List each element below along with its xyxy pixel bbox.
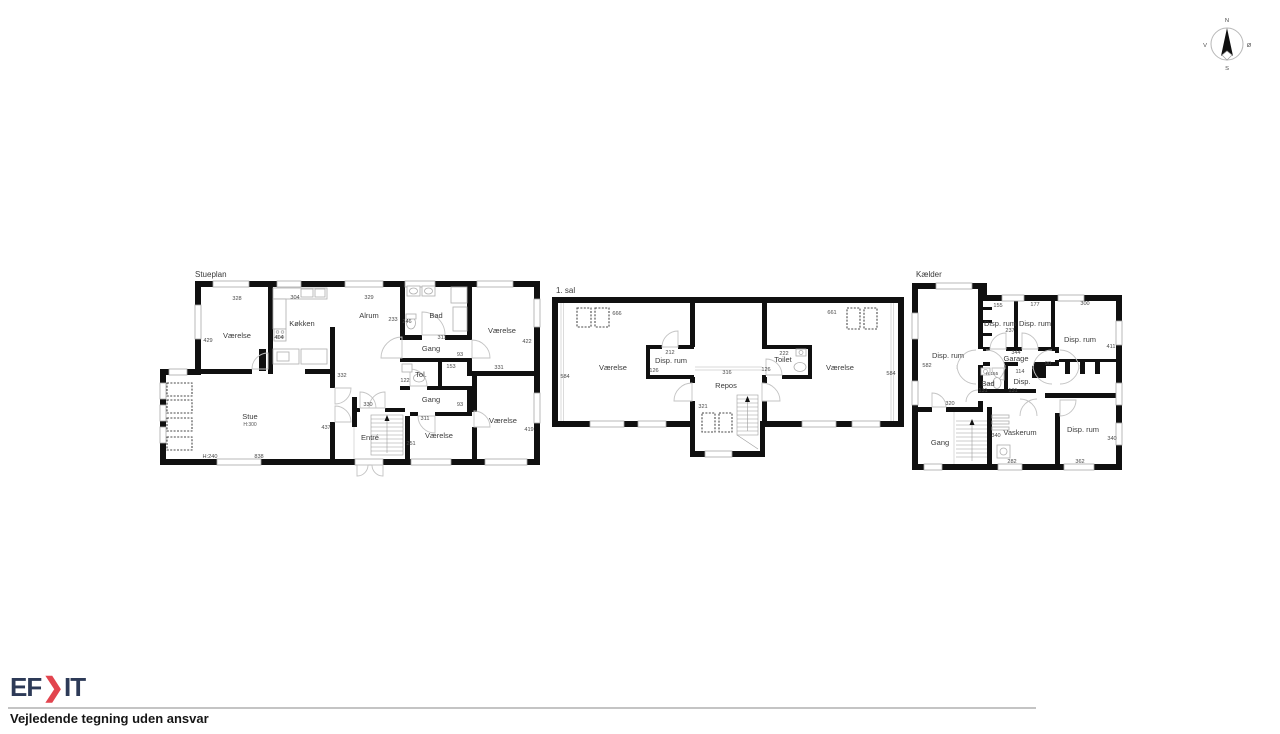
dim-label: 316 — [722, 370, 731, 376]
room-label: Alrum — [359, 311, 379, 320]
dim-label: 222 — [779, 351, 788, 357]
basement-stairs — [954, 412, 987, 464]
compass-rose: N S V Ø — [1197, 8, 1257, 76]
room-label: Værelse — [488, 326, 516, 335]
dim-label: H:155 — [986, 371, 999, 376]
dim-label: 233 — [388, 317, 397, 323]
dim-label: 131 — [1008, 388, 1017, 394]
room-label: Gang — [422, 344, 440, 353]
stueplan-labels: Værelse 328 429 Køkken 304 404 Alrum 329… — [203, 295, 534, 460]
room-label: Gang — [422, 395, 440, 404]
dim-label: 155 — [993, 303, 1002, 309]
dim-label: 304 — [290, 295, 299, 301]
room-label: Stue — [242, 412, 257, 421]
dim-label: 838 — [254, 454, 263, 460]
dim-label: 344 — [1011, 350, 1020, 356]
dim-label: 340 — [991, 433, 1000, 439]
dim-label: 300 — [1080, 301, 1089, 307]
room-label: Værelse — [425, 431, 453, 440]
basement-labels: Disp. rum 582 Disp. rum 155 237 Disp. ru… — [922, 301, 1116, 465]
dim-label: 321 — [698, 404, 707, 410]
stueplan-title: Stueplan — [195, 270, 227, 279]
dim-label: 437 — [321, 425, 330, 431]
room-label: Bad — [981, 379, 994, 388]
stueplan-drawing: Stueplan — [155, 265, 550, 477]
dim-label: 332 — [337, 373, 346, 379]
basement-title: Kælder — [916, 270, 942, 279]
dim-label: 126 — [649, 368, 658, 374]
firstfloor-stairs — [737, 395, 758, 449]
dim-label: 422 — [522, 339, 531, 345]
room-label: Værelse — [223, 331, 251, 340]
dim-label: 93 — [457, 352, 463, 358]
dim-label: 404 — [274, 335, 283, 341]
dim-label: 212 — [665, 350, 674, 356]
dim-label: 114 — [1016, 369, 1025, 375]
compass-label-east: Ø — [1247, 43, 1252, 49]
dim-label: 411 — [1107, 344, 1116, 350]
dim-label: 251 — [406, 441, 415, 447]
dim-label: 429 — [203, 338, 212, 344]
dim-label: 329 — [364, 295, 373, 301]
dim-label: 340 — [1107, 436, 1116, 442]
dim-label: 582 — [922, 363, 931, 369]
dim-label: 126 — [761, 367, 770, 373]
firstfloor-title: 1. sal — [556, 286, 575, 295]
dim-label: 131 — [978, 388, 987, 394]
firstfloor-walls — [552, 297, 904, 457]
dim-label: 311 — [438, 335, 447, 341]
footer-divider — [8, 707, 1036, 709]
stueplan-walls — [160, 281, 540, 465]
dim-label: 331 — [494, 365, 503, 371]
room-label: Tol. — [415, 370, 427, 379]
room-label: Disp. rum — [1019, 319, 1051, 328]
room-label: Værelse — [826, 363, 854, 372]
room-label: Bad — [429, 311, 442, 320]
room-sublabel: H:300 — [243, 422, 257, 428]
dim-label: 666 — [612, 311, 621, 317]
dim-label: 320 — [945, 401, 954, 407]
dim-label: 584 — [560, 374, 569, 380]
company-logo: EF❯IT — [10, 674, 85, 700]
logo-text-prefix: EF — [10, 672, 41, 702]
dim-label: 122 — [400, 378, 409, 384]
room-label: Disp. rum — [1064, 335, 1096, 344]
dim-label: 419 — [524, 427, 533, 433]
room-label: Værelse — [489, 416, 517, 425]
room-label: Vaskerum — [1003, 428, 1036, 437]
room-label: Disp. rum — [1067, 425, 1099, 434]
dim-label: H:240 — [203, 454, 218, 460]
room-label: Disp. rum — [984, 319, 1016, 328]
basement-drawing: Kælder — [910, 265, 1132, 477]
logo-chevron-icon: ❯ — [41, 672, 64, 702]
firstfloor-labels: Værelse 666 584 Disp. rum 212 126 Repos … — [560, 310, 895, 410]
compass-graphic — [1211, 28, 1243, 60]
dim-label: 362 — [1075, 459, 1084, 465]
dim-label: 90 — [1045, 361, 1051, 367]
room-label: Køkken — [289, 319, 314, 328]
compass-label-north: N — [1225, 18, 1229, 24]
dim-label: 282 — [1007, 459, 1016, 465]
room-label: Repos — [715, 381, 737, 390]
dim-label: 93 — [457, 402, 463, 408]
room-label: Gang — [931, 438, 949, 447]
dim-label: 153 — [446, 364, 455, 370]
dim-label: 237 — [1005, 328, 1014, 334]
dim-label: 584 — [886, 371, 895, 377]
dim-label: 246 — [402, 319, 411, 325]
disclaimer-text: Vejledende tegning uden ansvar — [10, 711, 209, 726]
room-label: Værelse — [599, 363, 627, 372]
compass-label-west: V — [1203, 43, 1207, 49]
dim-label: 328 — [232, 296, 241, 302]
dim-label: 661 — [827, 310, 836, 316]
dim-label: 311 — [421, 416, 430, 422]
logo-text-suffix: IT — [64, 672, 85, 702]
compass-label-south: S — [1225, 66, 1229, 72]
firstfloor-lines — [561, 303, 894, 421]
room-label: Disp. — [1013, 377, 1030, 386]
room-label: Disp. rum — [655, 356, 687, 365]
room-label: Disp. rum — [932, 351, 964, 360]
dim-label: 330 — [363, 402, 372, 408]
dim-label: 177 — [1030, 302, 1039, 308]
firstfloor-drawing: 1. sal — [550, 283, 910, 463]
room-label: Entré — [361, 433, 379, 442]
